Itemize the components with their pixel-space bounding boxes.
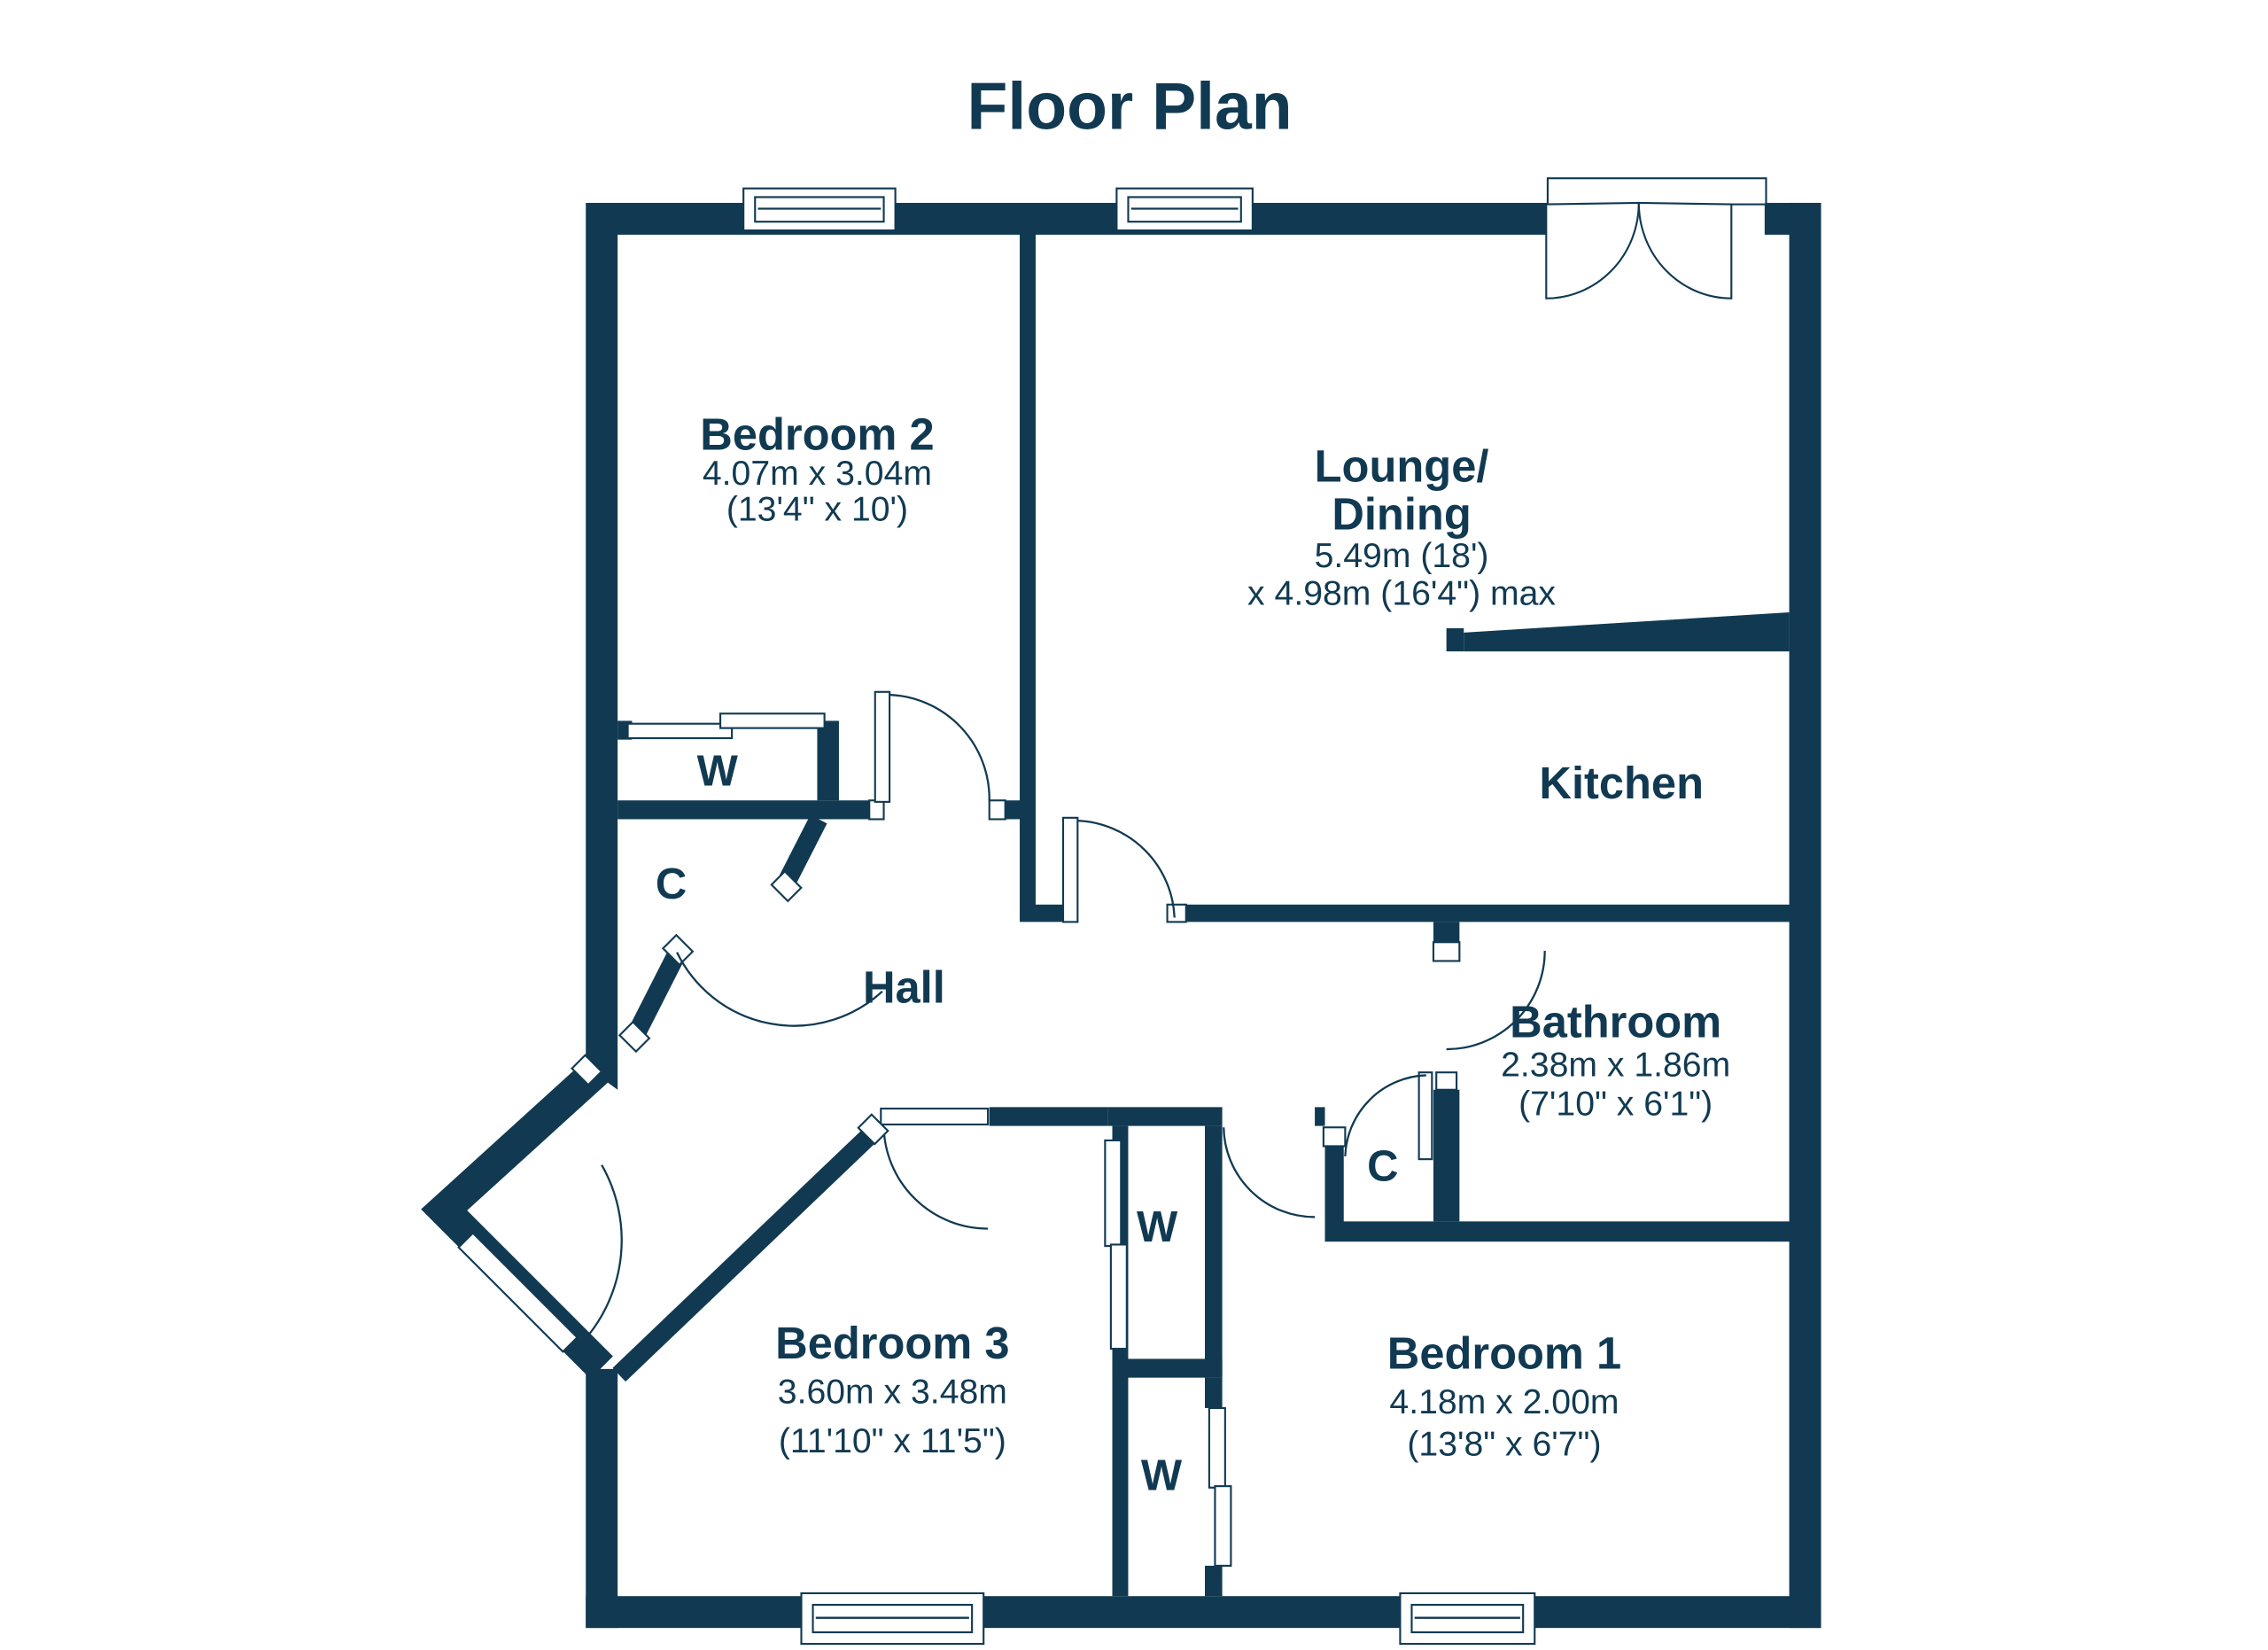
label-wardrobe-bed3: W bbox=[1137, 1203, 1178, 1251]
door-leaf bbox=[875, 692, 889, 802]
door-jamb bbox=[1324, 1127, 1345, 1146]
doors bbox=[459, 692, 1545, 1352]
door-lounge bbox=[1063, 818, 1186, 922]
label-bedroom1: Bedroom 1 bbox=[1387, 1327, 1621, 1378]
wall-wcol-right-block1 bbox=[1205, 1378, 1223, 1408]
kitchen-peninsula-block bbox=[1447, 628, 1464, 651]
wall-w2-right bbox=[817, 720, 838, 800]
wardrobe-panel-bed1 bbox=[1215, 1486, 1231, 1566]
window-bedroom3-bottom bbox=[801, 1593, 983, 1644]
wall-hall-south-a bbox=[990, 1107, 1108, 1125]
wall-bed2-south-left bbox=[617, 800, 869, 819]
label-lounge-imperial: x 4.98m (16'4") max bbox=[1247, 574, 1556, 612]
wall-bed1-north bbox=[1325, 1221, 1821, 1241]
wardrobe-panel-bed3 bbox=[1105, 1140, 1121, 1246]
wardrobe-panel-bed2 bbox=[720, 713, 825, 728]
door-jamb bbox=[869, 800, 883, 819]
wall-c2-right bbox=[1433, 1090, 1459, 1222]
label-bathroom-metric: 2.38m x 1.86m bbox=[1501, 1047, 1730, 1085]
wall-entrance-chamfer bbox=[444, 1067, 602, 1368]
window-lounge-top bbox=[1116, 189, 1252, 230]
wardrobe-panel-bed2 bbox=[628, 724, 733, 738]
door-bedroom3 bbox=[881, 1109, 988, 1229]
label-lounge-line2: Dining bbox=[1332, 488, 1471, 539]
wall-hallcloset-seg-b bbox=[635, 951, 679, 1036]
label-lounge-metric: 5.49m (18') bbox=[1315, 537, 1489, 575]
french-door-lounge bbox=[1546, 178, 1766, 299]
label-bedroom3-imperial: (11'10" x 11'5") bbox=[779, 1422, 1006, 1460]
door-bedroom2 bbox=[869, 692, 1005, 820]
wall-hallcloset-seg-a bbox=[786, 819, 819, 883]
door-leaf bbox=[881, 1109, 988, 1125]
label-bedroom1-imperial: (13'8" x 6'7") bbox=[1407, 1425, 1601, 1463]
label-bathroom: Bathroom bbox=[1510, 997, 1721, 1047]
wardrobe-panel-bed3 bbox=[1111, 1244, 1127, 1349]
wall-c2-left bbox=[1325, 1146, 1344, 1224]
label-cupboard-hall: C bbox=[656, 860, 687, 908]
wall-hall-south-b bbox=[1108, 1107, 1223, 1125]
kitchen-peninsula-wedge bbox=[1464, 612, 1789, 651]
label-cupboard-bath: C bbox=[1367, 1142, 1398, 1190]
wall-bed2-south-right bbox=[1006, 800, 1036, 819]
door-jamb bbox=[990, 800, 1006, 819]
door-jamb bbox=[1168, 905, 1186, 922]
label-wardrobe-bed2: W bbox=[697, 748, 739, 796]
window-bedroom1-bottom bbox=[1400, 1593, 1534, 1644]
door-entrance bbox=[459, 1055, 622, 1352]
door-leaf bbox=[459, 1233, 578, 1351]
label-bedroom2-imperial: (13'4" x 10') bbox=[726, 491, 908, 529]
wall-kitchen-bath bbox=[1186, 905, 1821, 922]
wall-wcol-right-upper bbox=[1205, 1126, 1223, 1378]
wardrobe-panel-bed1 bbox=[1209, 1408, 1225, 1488]
wall-bottom bbox=[586, 1596, 1821, 1628]
wall-left-lower bbox=[586, 1369, 617, 1628]
page-title: Floor Plan bbox=[967, 69, 1293, 144]
door-jamb bbox=[1436, 1072, 1456, 1090]
door-jamb bbox=[1433, 942, 1459, 961]
label-kitchen: Kitchen bbox=[1539, 758, 1704, 808]
floor-plan-page: Floor Plan Bedroom 2 4.07m x 3.04m (13'4… bbox=[0, 0, 2268, 1650]
label-bedroom1-metric: 4.18m x 2.00m bbox=[1389, 1383, 1619, 1421]
label-hall: Hall bbox=[863, 961, 945, 1012]
wall-left-upper bbox=[586, 203, 617, 1090]
label-bedroom2: Bedroom 2 bbox=[700, 409, 934, 460]
door-leaf bbox=[1063, 818, 1077, 922]
wall-wcol-right-block2 bbox=[1205, 1566, 1223, 1596]
label-bathroom-imperial: (7'10" x 6'1") bbox=[1518, 1086, 1713, 1124]
wall-top bbox=[588, 203, 1551, 235]
window-bedroom2-top bbox=[743, 189, 895, 230]
floor-plan-drawing: Floor Plan Bedroom 2 4.07m x 3.04m (13'4… bbox=[0, 0, 2268, 1650]
label-bedroom2-metric: 4.07m x 3.04m bbox=[703, 455, 932, 493]
label-bedroom3-metric: 3.60m x 3.48m bbox=[778, 1374, 1007, 1412]
door-leaf bbox=[1419, 1072, 1433, 1159]
wall-bath-door-stub bbox=[1433, 922, 1459, 942]
label-lounge-line1: Lounge/ bbox=[1315, 441, 1489, 492]
label-wardrobe-bed1: W bbox=[1141, 1452, 1183, 1500]
wall-bed1-door-jamb-wall bbox=[1315, 1107, 1324, 1125]
label-bedroom3: Bedroom 3 bbox=[775, 1318, 1009, 1368]
